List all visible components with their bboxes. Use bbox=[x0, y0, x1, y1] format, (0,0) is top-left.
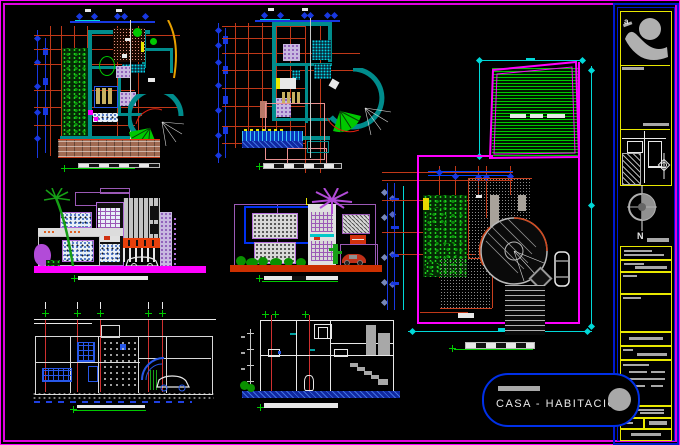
level-marker-icon bbox=[449, 345, 456, 352]
grid-line bbox=[382, 172, 513, 173]
drawing-shape bbox=[620, 65, 670, 66]
drawing-shape bbox=[97, 310, 104, 317]
drawing-shape bbox=[476, 57, 483, 64]
drawing-shape bbox=[306, 198, 307, 205]
north-arrow-icon bbox=[625, 185, 665, 233]
drawing-shape bbox=[215, 132, 222, 139]
table-ellipse bbox=[99, 56, 115, 76]
drawing-shape bbox=[624, 250, 652, 252]
drawing-shape bbox=[215, 27, 222, 34]
drawing-glyph bbox=[162, 122, 184, 146]
drawing-shape bbox=[649, 421, 667, 425]
drawing-shape bbox=[222, 38, 305, 39]
drawing-shape bbox=[640, 412, 664, 414]
drawing-shape bbox=[277, 12, 284, 19]
elevation-2 bbox=[222, 188, 400, 288]
drawing-shape bbox=[225, 28, 226, 158]
title-field bbox=[620, 260, 672, 272]
title-field bbox=[620, 332, 672, 346]
drawing-shape bbox=[58, 157, 160, 158]
drawing-shape bbox=[241, 336, 245, 338]
tree bbox=[133, 28, 142, 37]
drawing-shape bbox=[260, 320, 394, 321]
drawing-shape bbox=[588, 202, 595, 209]
drawing-shape bbox=[85, 9, 91, 12]
drawing-shape bbox=[34, 35, 180, 36]
scale-bar bbox=[264, 403, 338, 408]
drawing-shape bbox=[215, 107, 222, 114]
drawing-shape bbox=[242, 141, 303, 148]
drawing-shape bbox=[588, 67, 595, 74]
drawing-glyph bbox=[136, 109, 162, 124]
drawing-shape bbox=[70, 336, 71, 393]
wall-fill bbox=[366, 325, 376, 355]
drawing-shape bbox=[629, 337, 663, 340]
drawing-shape bbox=[34, 319, 216, 320]
drawing-shape bbox=[88, 30, 92, 138]
window bbox=[311, 212, 333, 232]
drawing-shape bbox=[417, 322, 580, 324]
drawing-shape bbox=[215, 59, 222, 66]
drawing-shape bbox=[268, 8, 274, 11]
drawing-shape bbox=[222, 26, 305, 27]
boundary-curve bbox=[164, 20, 182, 80]
drawing-shape bbox=[479, 60, 480, 157]
car-icon bbox=[156, 374, 190, 392]
drawing-shape bbox=[136, 240, 138, 246]
drawing-shape bbox=[148, 302, 149, 309]
architect-logo-icon bbox=[623, 13, 669, 63]
drawing-shape bbox=[417, 155, 493, 157]
drawing-shape bbox=[174, 218, 176, 266]
title-field bbox=[620, 246, 672, 260]
drawing-shape bbox=[150, 224, 158, 234]
drawing-shape bbox=[45, 302, 46, 309]
drawing-glyph bbox=[349, 255, 357, 259]
lawn-outline bbox=[488, 60, 584, 162]
drawing-shape bbox=[391, 226, 399, 229]
survey-mark-icon bbox=[657, 153, 671, 179]
drawing-shape bbox=[394, 183, 395, 310]
level-marker-icon bbox=[256, 163, 263, 170]
drawing-shape bbox=[272, 311, 279, 318]
drawing-shape bbox=[223, 96, 228, 104]
project-title-capsule: CASA - HABITACIÒN bbox=[482, 373, 640, 427]
drawing-shape bbox=[125, 38, 131, 41]
level-marker-icon bbox=[42, 310, 49, 317]
drawing-shape bbox=[276, 78, 280, 89]
drawing-glyph bbox=[639, 18, 661, 40]
side-wall bbox=[160, 212, 172, 266]
drawing-shape bbox=[148, 78, 155, 82]
drawing-shape bbox=[34, 135, 41, 142]
drawing-shape bbox=[623, 297, 641, 299]
dashed-line bbox=[34, 401, 192, 403]
wall-segment bbox=[272, 22, 332, 26]
drawing-shape bbox=[43, 108, 48, 115]
drawing-glyph bbox=[44, 188, 70, 200]
drawing-shape bbox=[145, 310, 152, 317]
drawing-shape bbox=[75, 20, 100, 21]
drawing-shape bbox=[310, 349, 315, 351]
drawing-shape bbox=[159, 310, 166, 317]
drawing-shape bbox=[34, 323, 92, 324]
drawing-shape bbox=[526, 58, 535, 61]
drawing-shape bbox=[247, 365, 254, 366]
drawing-shape bbox=[623, 275, 637, 277]
drawing-shape bbox=[104, 236, 110, 240]
drawing-shape bbox=[141, 42, 144, 52]
drawing-shape bbox=[116, 9, 122, 12]
drawing-shape bbox=[624, 263, 644, 265]
drawing-shape bbox=[116, 66, 130, 78]
drawing-shape bbox=[76, 13, 83, 20]
drawing-shape bbox=[100, 188, 130, 194]
drawing-shape bbox=[215, 82, 222, 89]
car-icon bbox=[552, 250, 572, 290]
drawing-shape bbox=[310, 18, 311, 158]
section-2 bbox=[238, 303, 403, 415]
drawing-shape bbox=[302, 311, 309, 318]
drawing-shape bbox=[391, 282, 399, 285]
drawing-shape bbox=[121, 13, 128, 20]
garden-hatch bbox=[62, 48, 90, 138]
cad-drawing-sheet: a N bbox=[0, 0, 680, 445]
window bbox=[98, 244, 120, 262]
ground-hatch bbox=[32, 392, 214, 401]
site-boundary bbox=[417, 155, 419, 324]
grid-line bbox=[235, 23, 236, 148]
drawing-shape bbox=[142, 13, 149, 20]
drawing-glyph bbox=[494, 67, 575, 154]
drawing-shape bbox=[318, 327, 328, 339]
drawing-shape bbox=[408, 331, 592, 332]
drawing-shape bbox=[247, 349, 254, 350]
drawing-shape bbox=[458, 313, 474, 318]
ground-hatch bbox=[242, 391, 400, 398]
drawing-shape bbox=[34, 35, 41, 42]
drawing-shape bbox=[138, 336, 139, 393]
furniture bbox=[42, 368, 72, 382]
drawing-shape bbox=[637, 353, 667, 356]
ground-line bbox=[230, 265, 382, 272]
drawing-shape bbox=[409, 328, 416, 335]
level-marker-icon bbox=[71, 275, 78, 282]
drawing-shape bbox=[631, 433, 661, 436]
drawing-shape bbox=[34, 109, 41, 116]
drawing-shape bbox=[547, 114, 565, 118]
drawing-shape bbox=[122, 54, 127, 58]
drawing-shape bbox=[622, 67, 644, 70]
drawing-shape bbox=[312, 40, 331, 60]
drawing-shape bbox=[591, 66, 592, 328]
drawing-shape bbox=[620, 129, 670, 130]
dimension-line bbox=[70, 21, 155, 23]
grid-line bbox=[50, 26, 51, 156]
floor-plan-2 bbox=[210, 8, 405, 180]
drawing-shape bbox=[91, 13, 98, 20]
window bbox=[311, 241, 333, 261]
drawing-shape bbox=[150, 38, 157, 45]
room-hatch bbox=[283, 44, 300, 61]
figure bbox=[304, 375, 314, 391]
drawing-shape bbox=[334, 349, 348, 357]
drawing-glyph bbox=[555, 252, 569, 286]
drawing-shape bbox=[352, 239, 364, 240]
drawing-shape bbox=[314, 237, 320, 240]
car-icon bbox=[341, 250, 367, 266]
drawing-glyph bbox=[168, 20, 176, 78]
drawing-shape bbox=[290, 333, 296, 335]
drawing-glyph bbox=[161, 385, 167, 391]
drawing-shape bbox=[330, 321, 331, 391]
stair-steps bbox=[505, 285, 545, 335]
driveway-hatch bbox=[58, 140, 160, 157]
drawing-shape bbox=[96, 88, 100, 104]
drawing-shape bbox=[624, 254, 664, 256]
drawing-shape bbox=[162, 302, 163, 309]
level-marker-icon bbox=[262, 311, 269, 318]
window bbox=[252, 213, 298, 239]
north-label: N bbox=[637, 231, 644, 241]
drawing-shape bbox=[74, 410, 146, 411]
section-1 bbox=[30, 300, 222, 415]
drawing-shape bbox=[45, 38, 46, 153]
floor-plan-1 bbox=[30, 8, 210, 176]
drawing-shape bbox=[302, 8, 308, 11]
drawing-shape bbox=[34, 83, 41, 90]
dimension-line bbox=[387, 183, 388, 310]
drawing-shape bbox=[468, 178, 532, 179]
drawing-shape bbox=[627, 141, 643, 153]
drawing-shape bbox=[261, 12, 268, 19]
scale-bar bbox=[263, 163, 342, 169]
hatched-wall bbox=[102, 340, 136, 390]
drawing-shape bbox=[636, 409, 664, 411]
scale-bar bbox=[77, 405, 145, 408]
drawing-shape bbox=[651, 371, 665, 373]
drawing-shape bbox=[423, 198, 429, 210]
drawing-shape bbox=[331, 12, 338, 19]
drawing-shape bbox=[108, 88, 112, 104]
drawing-shape bbox=[647, 238, 669, 242]
drawing-shape bbox=[442, 243, 458, 259]
level-marker-icon bbox=[257, 404, 264, 411]
drawing-shape bbox=[518, 195, 526, 211]
drawing-shape bbox=[530, 114, 543, 118]
drawing-glyph bbox=[179, 385, 185, 391]
drawing-shape bbox=[378, 379, 388, 385]
drawing-shape bbox=[428, 175, 513, 176]
drawing-shape bbox=[454, 349, 533, 350]
pool-hatch bbox=[242, 131, 303, 141]
drawing-shape bbox=[241, 352, 245, 354]
elevation-1 bbox=[30, 188, 215, 288]
drawing-shape bbox=[215, 152, 222, 159]
drawing-shape bbox=[215, 42, 222, 49]
drawing-shape bbox=[43, 78, 48, 85]
drawing-shape bbox=[629, 371, 647, 373]
logo-letter: a bbox=[624, 17, 628, 26]
scale-bar bbox=[465, 342, 535, 349]
drawing-shape bbox=[329, 248, 333, 251]
drawing-shape bbox=[94, 117, 98, 121]
title-field bbox=[644, 418, 672, 429]
drawing-shape bbox=[278, 351, 281, 354]
title-field bbox=[620, 294, 672, 332]
drawing-shape bbox=[425, 261, 439, 275]
drawing-shape bbox=[223, 126, 228, 134]
drawing-shape bbox=[644, 131, 645, 183]
drawing-glyph bbox=[490, 62, 579, 158]
drawing-shape bbox=[468, 178, 469, 258]
drawing-shape bbox=[65, 168, 135, 169]
drawing-shape bbox=[128, 240, 130, 246]
site-plan bbox=[380, 58, 598, 354]
drawing-shape bbox=[643, 123, 669, 126]
drawing-glyph bbox=[126, 257, 158, 266]
title-field bbox=[620, 429, 672, 441]
drawing-shape bbox=[152, 240, 154, 246]
drawing-shape bbox=[623, 364, 649, 366]
drawing-glyph bbox=[638, 203, 646, 211]
drawing-shape bbox=[428, 208, 446, 226]
drawing-shape bbox=[247, 333, 254, 334]
scale-bar bbox=[78, 276, 148, 280]
title-field bbox=[620, 272, 672, 294]
drawing-shape bbox=[247, 384, 255, 392]
drawing-shape bbox=[74, 310, 81, 317]
level-marker-icon bbox=[70, 406, 77, 413]
drawing-shape bbox=[510, 114, 526, 118]
drawing-shape bbox=[623, 349, 633, 351]
drawing-shape bbox=[88, 366, 98, 382]
drawing-shape bbox=[262, 281, 338, 282]
window bbox=[77, 342, 95, 362]
drawing-shape bbox=[88, 110, 93, 115]
title-accent-bar bbox=[498, 386, 540, 391]
drawing-shape bbox=[578, 62, 580, 324]
palm-tree-icon bbox=[310, 188, 354, 214]
cactus bbox=[333, 244, 338, 264]
drawing-shape bbox=[476, 195, 482, 198]
drawing-shape bbox=[296, 321, 297, 391]
title-field bbox=[620, 346, 672, 360]
drawing-shape bbox=[102, 88, 106, 104]
drawing-shape bbox=[292, 276, 306, 280]
stamp-circle bbox=[608, 388, 631, 411]
drawing-shape bbox=[241, 368, 245, 370]
drawing-shape bbox=[649, 378, 665, 380]
hatched-detail bbox=[622, 153, 641, 185]
level-marker-icon bbox=[61, 165, 68, 172]
drawing-shape bbox=[651, 385, 663, 387]
window bbox=[342, 214, 370, 234]
drawing-shape bbox=[150, 206, 158, 220]
drawing-shape bbox=[260, 19, 290, 20]
level-marker-icon bbox=[256, 275, 263, 282]
drawing-shape bbox=[440, 308, 492, 309]
drawing-shape bbox=[77, 302, 78, 309]
drawing-shape bbox=[403, 186, 404, 310]
drawing-shape bbox=[635, 266, 667, 269]
drawing-shape bbox=[100, 302, 101, 309]
drawing-shape bbox=[144, 240, 146, 246]
drawing-shape bbox=[98, 336, 99, 393]
ground-line bbox=[34, 266, 206, 273]
